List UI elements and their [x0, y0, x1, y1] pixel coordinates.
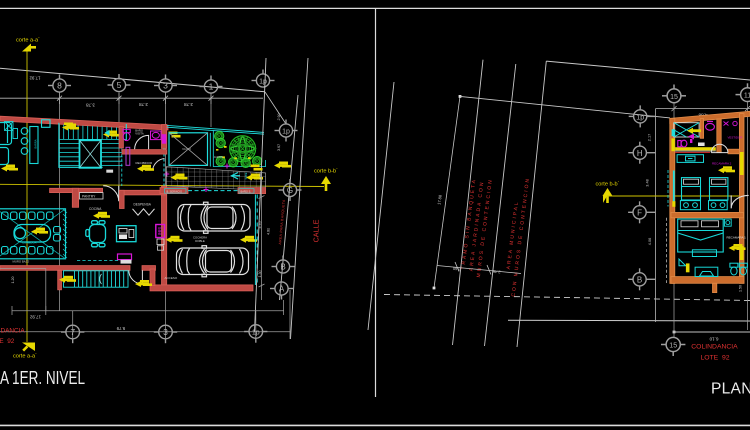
svg-text:4.70: 4.70	[258, 221, 262, 228]
svg-text:17.92: 17.92	[29, 315, 41, 320]
svg-text:BARRA: BARRA	[33, 139, 37, 148]
svg-text:3.48: 3.48	[646, 179, 650, 186]
svg-text:3.97: 3.97	[277, 144, 281, 151]
svg-text:3.60: 3.60	[452, 266, 461, 272]
svg-text:17.88: 17.88	[436, 194, 442, 205]
svg-text:PANTRY: PANTRY	[82, 195, 96, 199]
svg-text:COLINDANCIA: COLINDANCIA	[691, 343, 738, 350]
svg-text:VESTIDOR: VESTIDOR	[728, 136, 743, 140]
svg-text:1p: 1p	[282, 129, 290, 136]
svg-text:G: G	[287, 186, 293, 195]
svg-text:RECIBIDOR: RECIBIDOR	[136, 161, 154, 165]
svg-text:corte a-a´: corte a-a´	[13, 354, 37, 360]
svg-text:6.10: 6.10	[709, 337, 718, 342]
svg-text:H: H	[637, 149, 643, 158]
svg-text:LOTE 92: LOTE 92	[0, 338, 15, 345]
svg-text:17.92: 17.92	[29, 76, 41, 81]
svg-text:DESPENSA: DESPENSA	[134, 202, 152, 206]
svg-text:4.80: 4.80	[266, 228, 270, 235]
svg-text:ACCESO: ACCESO	[165, 276, 178, 280]
svg-text:8: 8	[57, 81, 62, 91]
svg-text:A: A	[279, 285, 285, 294]
svg-text:1: 1	[209, 82, 214, 92]
svg-text:JARDIN: JARDIN	[214, 155, 223, 159]
svg-text:11: 11	[744, 93, 750, 100]
svg-text:1.50: 1.50	[739, 285, 743, 292]
svg-text:VISITA: VISITA	[135, 132, 144, 136]
svg-text:LOTE 92: LOTE 92	[700, 355, 729, 362]
svg-text:B. SERVICIO: B. SERVICIO	[167, 189, 183, 193]
svg-text:REF: REF	[157, 228, 161, 234]
svg-text:VACIO: VACIO	[182, 147, 192, 151]
svg-text:COCINA: COCINA	[89, 207, 102, 211]
svg-text:15: 15	[670, 94, 678, 101]
svg-text:4.06: 4.06	[648, 238, 652, 245]
svg-text:3: 3	[163, 327, 168, 337]
svg-text:corte b-b´: corte b-b´	[314, 169, 338, 175]
svg-text:7: 7	[70, 327, 75, 337]
svg-text:DOBLE: DOBLE	[195, 239, 205, 243]
svg-text:1.30: 1.30	[258, 270, 262, 277]
svg-text:2.46: 2.46	[492, 269, 501, 275]
svg-text:9.79: 9.79	[116, 326, 125, 331]
svg-text:2.90: 2.90	[277, 113, 281, 120]
svg-text:COLINDANCIA: COLINDANCIA	[0, 328, 25, 335]
svg-text:1.20: 1.20	[11, 277, 15, 284]
svg-text:SUBE: SUBE	[244, 172, 248, 179]
svg-text:COMEDOR: COMEDOR	[22, 241, 37, 245]
svg-text:B: B	[280, 263, 285, 272]
svg-text:3.78: 3.78	[86, 102, 95, 107]
svg-text:1.36: 1.36	[258, 173, 262, 180]
svg-text:corte b-b´: corte b-b´	[596, 182, 620, 188]
svg-text:corte a-a´: corte a-a´	[16, 38, 40, 44]
svg-text:15: 15	[669, 343, 677, 350]
svg-text:RECAMARA 1: RECAMARA 1	[727, 236, 747, 240]
svg-text:2.17: 2.17	[648, 134, 652, 141]
svg-text:1p: 1p	[252, 330, 260, 337]
svg-text:F: F	[637, 208, 642, 217]
svg-text:5: 5	[117, 80, 122, 90]
svg-text:A 1ER. NIVEL: A 1ER. NIVEL	[0, 368, 85, 388]
svg-text:RECAMARA 2: RECAMARA 2	[712, 162, 732, 166]
svg-text:3: 3	[163, 81, 168, 91]
svg-text:MURO BAJO: MURO BAJO	[13, 260, 30, 264]
svg-text:1p: 1p	[636, 115, 644, 122]
svg-text:3.78: 3.78	[139, 102, 148, 107]
svg-text:B: B	[637, 275, 642, 284]
svg-text:3.78: 3.78	[184, 102, 193, 107]
svg-text:1p: 1p	[259, 79, 267, 86]
svg-text:CALLE: CALLE	[312, 219, 321, 242]
svg-text:PLANTA: PLANTA	[711, 381, 750, 398]
